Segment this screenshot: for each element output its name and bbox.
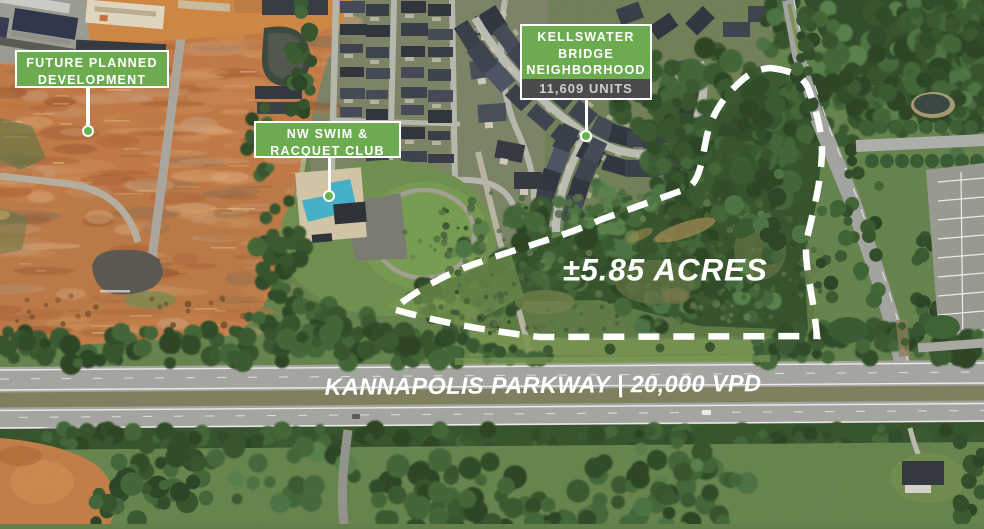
svg-text:±5.85 ACRES: ±5.85 ACRES	[562, 252, 767, 288]
svg-text:KANNAPOLIS PARKWAY | 20,000 VP: KANNAPOLIS PARKWAY | 20,000 VPD	[324, 370, 761, 400]
